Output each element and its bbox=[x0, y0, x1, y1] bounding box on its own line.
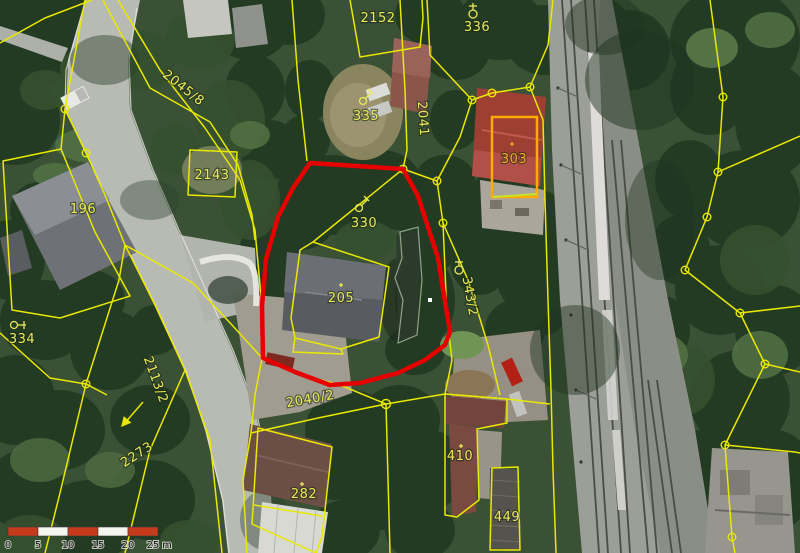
parcel-label-303: 303 bbox=[501, 152, 527, 167]
parcel-label-336: 336 bbox=[464, 20, 490, 35]
parcel-label-449: 449 bbox=[494, 510, 520, 525]
map-viewport[interactable]: 2152 336 2045/8 2041 2143 196 335 303 33… bbox=[0, 0, 800, 553]
parcel-label-2152: 2152 bbox=[360, 11, 395, 26]
parcel-label-2041: 2041 bbox=[414, 101, 431, 137]
parcel-label-282: 282 bbox=[291, 487, 317, 502]
parcel-label-334: 334 bbox=[9, 332, 35, 347]
scale-tick-0: 0 bbox=[5, 540, 11, 551]
parcel-label-335: 335 bbox=[353, 109, 379, 124]
scale-unit: m bbox=[162, 540, 172, 551]
ruins-bottom-right bbox=[705, 448, 795, 553]
scale-tick-10: 10 bbox=[62, 540, 75, 551]
garages-449 bbox=[489, 468, 521, 550]
parcel-label-330: 330 bbox=[351, 216, 377, 231]
scale-tick-20: 20 bbox=[122, 540, 135, 551]
parcel-label-410: 410 bbox=[447, 449, 473, 464]
scale-tick-25: 25 bbox=[147, 540, 160, 551]
scale-tick-15: 15 bbox=[92, 540, 105, 551]
parcel-label-2143: 2143 bbox=[194, 168, 229, 183]
scale-tick-5: 5 bbox=[35, 540, 41, 551]
parcel-label-196: 196 bbox=[70, 202, 96, 217]
parcel-label-205: 205 bbox=[328, 291, 354, 306]
